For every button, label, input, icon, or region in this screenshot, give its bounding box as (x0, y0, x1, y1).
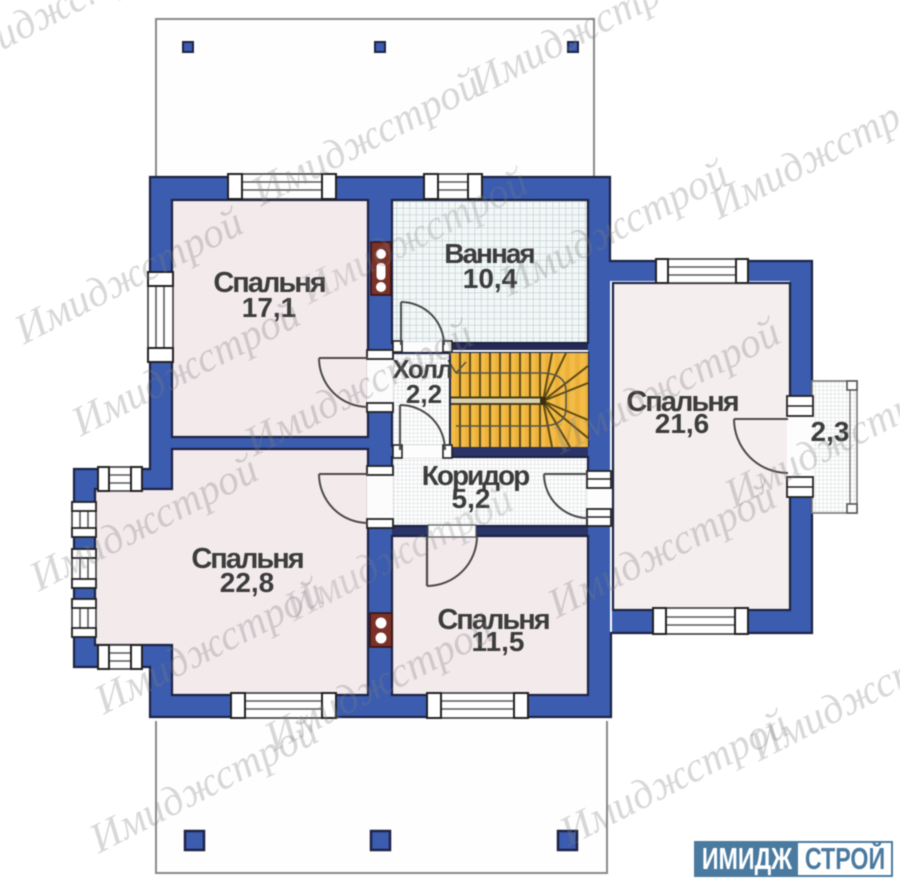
svg-text:СТРОЙ: СТРОЙ (805, 840, 885, 876)
svg-text:ИМИДЖ: ИМИДЖ (702, 841, 793, 876)
